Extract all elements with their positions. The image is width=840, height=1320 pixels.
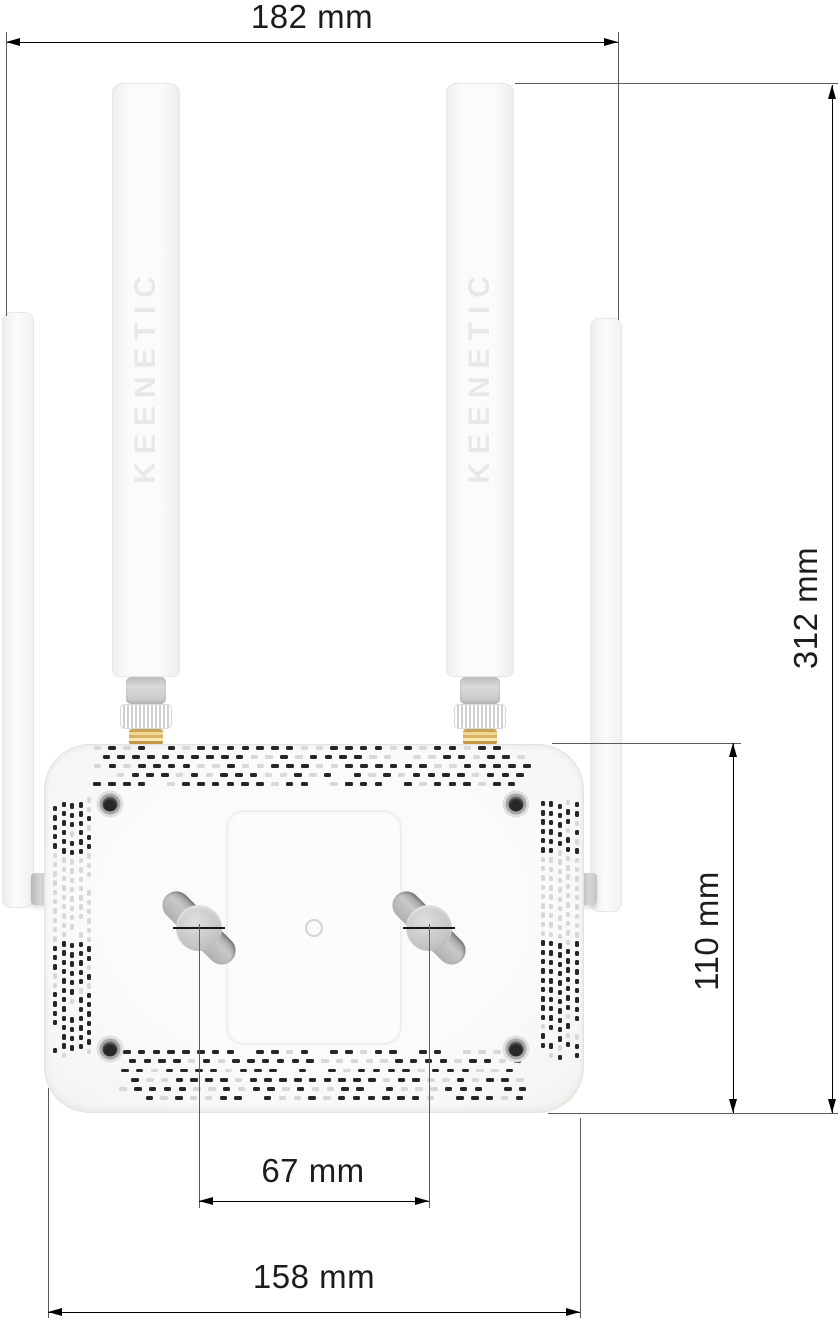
vent-hole xyxy=(575,867,579,872)
vent-hole xyxy=(501,1078,509,1082)
vent-hole xyxy=(62,1034,66,1039)
vent-hole xyxy=(212,764,220,768)
dim-arrow xyxy=(828,85,836,99)
vent-hole xyxy=(62,876,66,881)
vent-hole xyxy=(354,755,362,759)
vent-hole xyxy=(575,951,579,956)
vent-hole xyxy=(413,773,421,777)
vent-hole xyxy=(353,1078,361,1082)
vent-hole xyxy=(508,764,516,768)
vent-hole xyxy=(549,829,553,834)
vent-hole xyxy=(558,1027,562,1032)
vent-hole xyxy=(62,802,66,807)
vent-hole xyxy=(541,912,545,917)
vent-hole xyxy=(360,782,368,786)
vent-hole xyxy=(203,1059,211,1063)
vent-hole xyxy=(53,936,57,941)
vent-hole xyxy=(251,755,259,759)
vent-hole xyxy=(445,1087,453,1091)
vent-hole xyxy=(541,810,545,815)
vent-hole xyxy=(549,1053,553,1058)
vent-hole xyxy=(541,829,545,834)
vent-hole xyxy=(566,828,570,833)
vent-hole xyxy=(449,764,457,768)
vent-hole xyxy=(175,1096,183,1100)
vent-hole xyxy=(70,813,74,818)
vent-hole xyxy=(62,904,66,909)
vent-hole xyxy=(558,1055,562,1060)
vent-hole xyxy=(366,1059,374,1063)
dim-mount-spacing-label: 67 mm xyxy=(261,1152,364,1190)
vent-hole xyxy=(549,1025,553,1030)
vent-hole xyxy=(516,773,524,777)
dim-arrow xyxy=(6,38,20,46)
vent-hole xyxy=(286,764,294,768)
vent-hole xyxy=(62,1053,66,1058)
vent-hole xyxy=(575,988,579,993)
vent-hole xyxy=(271,782,279,786)
vent-hole xyxy=(87,965,91,970)
vent-hole xyxy=(87,844,91,849)
vent-hole xyxy=(514,1059,522,1063)
vent-hole xyxy=(324,1078,332,1082)
vent-hole xyxy=(212,746,220,750)
vent-hole xyxy=(575,941,579,946)
vent-hole xyxy=(79,1044,83,1049)
vent-hole xyxy=(464,764,472,768)
vent-hole xyxy=(53,862,57,867)
vent-hole xyxy=(62,820,66,825)
vent-hole xyxy=(79,858,83,863)
vent-hole xyxy=(309,773,317,777)
vent-hole xyxy=(566,949,570,954)
vent-hole xyxy=(549,904,553,909)
vent-hole xyxy=(566,1014,570,1019)
vent-hole xyxy=(449,746,457,750)
vent-hole xyxy=(168,764,176,768)
dim-arrow xyxy=(415,1197,429,1205)
vent-hole xyxy=(280,755,288,759)
vent-hole xyxy=(541,987,545,992)
vent-hole xyxy=(70,989,74,994)
vent-hole xyxy=(79,1035,83,1040)
vent-hole xyxy=(566,847,570,852)
vent-hole xyxy=(70,915,74,920)
vent-hole xyxy=(62,941,66,946)
vent-hole xyxy=(87,983,91,988)
router-dimension-drawing: KEENETIC KEENETIC 182 mm 312 mm 110 mm 6… xyxy=(0,0,840,1320)
vent-hole xyxy=(388,1069,396,1073)
vent-hole xyxy=(221,755,229,759)
vent-hole xyxy=(343,1069,351,1073)
vent-hole xyxy=(390,764,398,768)
vent-hole xyxy=(575,960,579,965)
vent-hole xyxy=(146,1078,154,1082)
vent-hole xyxy=(478,782,486,786)
vent-hole xyxy=(182,1050,190,1054)
vent-hole xyxy=(138,746,146,750)
vent-hole xyxy=(479,764,487,768)
vent-hole xyxy=(62,950,66,955)
vent-hole xyxy=(70,878,74,883)
vent-hole xyxy=(472,1078,480,1082)
vent-hole xyxy=(79,1016,83,1021)
vent-hole xyxy=(271,1050,279,1054)
vent-hole xyxy=(62,960,66,965)
vent-hole xyxy=(87,1030,91,1035)
extension-line xyxy=(548,1113,838,1114)
vent-hole xyxy=(541,838,545,843)
vent-hole xyxy=(123,746,131,750)
vent-hole xyxy=(462,1069,470,1073)
vent-hole xyxy=(384,755,392,759)
vent-hole xyxy=(79,979,83,984)
vent-hole xyxy=(312,1087,320,1091)
vent-hole xyxy=(70,906,74,911)
vent-hole xyxy=(87,797,91,802)
vent-hole xyxy=(558,971,562,976)
vent-hole xyxy=(179,1087,187,1091)
vent-hole xyxy=(541,922,545,927)
vent-hole xyxy=(79,849,83,854)
vent-hole xyxy=(558,1045,562,1050)
vent-hole xyxy=(541,866,545,871)
vent-hole xyxy=(504,1087,512,1091)
vent-hole xyxy=(566,958,570,963)
vent-hole xyxy=(398,773,406,777)
vent-hole xyxy=(541,996,545,1001)
vent-hole xyxy=(427,1096,435,1100)
vent-hole xyxy=(191,755,199,759)
vent-hole xyxy=(339,755,347,759)
vent-hole xyxy=(541,940,545,945)
vent-hole xyxy=(390,746,398,750)
vent-hole xyxy=(491,1069,499,1073)
dim-top-width-line xyxy=(6,42,618,43)
antenna-front-left-hinge xyxy=(126,677,166,704)
vent-hole xyxy=(87,835,91,840)
vent-hole xyxy=(191,773,199,777)
vent-hole xyxy=(87,900,91,905)
vent-hole xyxy=(558,869,562,874)
vent-hole xyxy=(53,955,57,960)
vent-hole xyxy=(558,915,562,920)
vent-hole xyxy=(79,811,83,816)
vent-hole xyxy=(472,773,480,777)
vent-hole xyxy=(138,764,146,768)
vent-hole xyxy=(62,978,66,983)
vent-hole xyxy=(575,932,579,937)
vent-hole xyxy=(566,874,570,879)
vent-hole xyxy=(558,897,562,902)
vent-hole xyxy=(271,746,279,750)
screw-bottom-left xyxy=(103,1042,118,1057)
vent-hole xyxy=(464,746,472,750)
dim-body-height-label: 110 mm xyxy=(688,871,726,991)
extension-line xyxy=(552,743,741,744)
vent-hole xyxy=(558,850,562,855)
vent-hole xyxy=(161,1078,169,1082)
vent-hole xyxy=(382,1096,390,1100)
vent-hole xyxy=(190,1096,198,1100)
vent-hole xyxy=(401,1087,409,1091)
vent-hole xyxy=(236,755,244,759)
vent-hole xyxy=(541,1043,545,1048)
vent-hole xyxy=(541,847,545,852)
vent-hole xyxy=(70,1045,74,1050)
vent-hole xyxy=(502,773,510,777)
vent-hole xyxy=(549,811,553,816)
vent-hole xyxy=(405,764,413,768)
vent-hole xyxy=(205,1078,213,1082)
vent-hole xyxy=(235,1078,243,1082)
vent-hole xyxy=(62,830,66,835)
vent-hole xyxy=(240,1069,248,1073)
vent-hole xyxy=(558,822,562,827)
vent-hole xyxy=(558,1036,562,1041)
antenna-side-left xyxy=(2,312,34,908)
vent-hole xyxy=(463,1050,471,1054)
vent-hole xyxy=(502,755,510,759)
vent-hole xyxy=(558,804,562,809)
vent-hole xyxy=(383,1078,391,1082)
antenna-side-right xyxy=(590,318,622,912)
dim-overall-height-label: 312 mm xyxy=(787,547,825,669)
vent-hole xyxy=(549,885,553,890)
vent-hole xyxy=(138,1050,146,1054)
vent-hole xyxy=(549,1015,553,1020)
vent-hole xyxy=(153,764,161,768)
vent-hole xyxy=(62,1025,66,1030)
vent-hole xyxy=(471,1096,479,1100)
vent-hole xyxy=(499,1059,507,1063)
vent-hole xyxy=(558,878,562,883)
vent-hole xyxy=(79,997,83,1002)
vent-hole xyxy=(558,934,562,939)
vent-hole xyxy=(212,1050,220,1054)
vent-hole xyxy=(383,773,391,777)
dim-body-width-line xyxy=(48,1312,580,1313)
vent-hole xyxy=(79,960,83,965)
vent-hole xyxy=(190,1078,198,1082)
vent-hole xyxy=(242,764,250,768)
vent-hole xyxy=(375,746,383,750)
vent-hole xyxy=(223,1087,231,1091)
vent-hole xyxy=(549,839,553,844)
vent-hole xyxy=(575,858,579,863)
dim-arrow xyxy=(828,1099,836,1113)
vent-hole xyxy=(53,1048,57,1053)
vent-hole xyxy=(53,871,57,876)
vent-hole xyxy=(566,921,570,926)
vent-hole xyxy=(486,1078,494,1082)
extension-line xyxy=(48,1088,49,1318)
vent-hole xyxy=(575,839,579,844)
vent-hole xyxy=(53,964,57,969)
vent-hole xyxy=(443,755,451,759)
vent-hole xyxy=(575,1044,579,1049)
vent-hole xyxy=(457,1078,465,1082)
dim-overall-height-line xyxy=(832,85,833,1113)
vent-hole xyxy=(151,1069,159,1073)
vent-hole xyxy=(575,904,579,909)
vent-hole xyxy=(558,887,562,892)
vent-hole xyxy=(558,990,562,995)
vent-hole xyxy=(558,841,562,846)
vent-hole xyxy=(62,895,66,900)
vent-hole xyxy=(277,1059,285,1063)
vent-hole xyxy=(428,755,436,759)
vent-hole xyxy=(410,1059,418,1063)
vent-hole xyxy=(558,1008,562,1013)
vent-hole xyxy=(310,755,318,759)
vent-hole xyxy=(70,850,74,855)
vent-hole xyxy=(253,1087,261,1091)
vent-hole xyxy=(541,1033,545,1038)
vent-hole xyxy=(53,834,57,839)
vent-hole xyxy=(70,868,74,873)
vent-hole xyxy=(419,746,427,750)
vent-hole xyxy=(316,746,324,750)
vent-hole xyxy=(176,1078,184,1082)
vent-hole xyxy=(447,1069,455,1073)
vent-hole xyxy=(242,746,250,750)
vent-hole xyxy=(368,1078,376,1082)
vent-hole xyxy=(549,941,553,946)
vent-hole xyxy=(256,746,264,750)
vent-hole xyxy=(373,1069,381,1073)
vent-hole xyxy=(412,1078,420,1082)
vent-hole xyxy=(324,773,332,777)
vent-hole xyxy=(566,930,570,935)
extension-line xyxy=(618,32,619,320)
vent-hole xyxy=(541,950,545,955)
vent-hole xyxy=(247,1059,255,1063)
vent-hole xyxy=(70,971,74,976)
vent-hole xyxy=(79,839,83,844)
vent-hole xyxy=(164,1087,172,1091)
vent-hole xyxy=(321,1059,329,1063)
vent-hole xyxy=(558,962,562,967)
vent-hole xyxy=(434,1050,442,1054)
vent-hole xyxy=(356,1087,364,1091)
vent-hole xyxy=(108,746,116,750)
vent-hole xyxy=(549,801,553,806)
vent-hole xyxy=(336,1059,344,1063)
vent-hole xyxy=(79,802,83,807)
vent-hole xyxy=(166,1069,174,1073)
vent-hole xyxy=(79,914,83,919)
vent-hole xyxy=(295,755,303,759)
extension-line xyxy=(515,83,838,84)
vent-hole xyxy=(575,1053,579,1058)
vent-hole xyxy=(53,843,57,848)
vent-hole xyxy=(360,1050,368,1054)
vent-hole xyxy=(331,764,339,768)
vent-hole xyxy=(132,773,140,777)
vent-hole xyxy=(566,902,570,907)
vent-hole xyxy=(345,1050,353,1054)
antenna-front-left: KEENETIC xyxy=(112,83,180,677)
vent-hole xyxy=(434,746,442,750)
vent-hole xyxy=(256,782,264,786)
vent-hole xyxy=(208,1087,216,1091)
vent-hole xyxy=(549,932,553,937)
vent-hole xyxy=(434,782,442,786)
vent-hole xyxy=(397,1096,405,1100)
vent-hole xyxy=(549,894,553,899)
vent-hole xyxy=(70,841,74,846)
vent-hole xyxy=(234,1096,242,1100)
vent-hole xyxy=(227,782,235,786)
vent-hole xyxy=(345,782,353,786)
vent-hole xyxy=(79,895,83,900)
vent-hole xyxy=(132,755,140,759)
screw-top-left xyxy=(103,797,118,812)
vent-hole xyxy=(575,969,579,974)
vent-hole xyxy=(341,1087,349,1091)
vent-hole xyxy=(460,1087,468,1091)
vent-hole xyxy=(70,822,74,827)
vent-hole xyxy=(375,764,383,768)
vent-hole xyxy=(94,746,102,750)
vent-hole xyxy=(257,764,265,768)
vent-hole xyxy=(454,1059,462,1063)
vent-hole xyxy=(301,764,309,768)
vent-hole xyxy=(153,1050,161,1054)
vent-hole xyxy=(541,959,545,964)
extension-line xyxy=(580,1118,581,1318)
vent-hole xyxy=(53,946,57,951)
vent-hole xyxy=(368,773,376,777)
center-hole xyxy=(305,919,323,937)
vent-hole xyxy=(395,1059,403,1063)
vent-hole xyxy=(360,764,368,768)
vent-hole xyxy=(517,755,525,759)
vent-hole xyxy=(558,1018,562,1023)
vent-hole xyxy=(549,922,553,927)
vent-hole xyxy=(516,1078,524,1082)
vent-hole xyxy=(523,764,531,768)
vent-hole xyxy=(158,1059,166,1063)
vent-hole xyxy=(473,755,481,759)
vent-hole xyxy=(476,1069,484,1073)
vent-hole xyxy=(79,830,83,835)
vent-hole xyxy=(62,1043,66,1048)
vent-hole xyxy=(493,746,501,750)
vent-hole xyxy=(168,746,176,750)
vent-hole xyxy=(566,1023,570,1028)
vent-hole xyxy=(218,1059,226,1063)
vent-hole xyxy=(428,773,436,777)
vent-hole xyxy=(541,894,545,899)
vent-hole xyxy=(119,1087,127,1091)
vent-hole xyxy=(541,931,545,936)
vent-hole xyxy=(541,1024,545,1029)
vent-hole xyxy=(566,1033,570,1038)
vent-hole xyxy=(53,908,57,913)
vent-hole xyxy=(380,1059,388,1063)
vent-hole xyxy=(368,1096,376,1100)
vent-hole xyxy=(87,807,91,812)
vent-hole xyxy=(176,773,184,777)
vent-hole xyxy=(566,912,570,917)
vent-hole xyxy=(146,1096,154,1100)
vent-hole xyxy=(70,831,74,836)
vent-hole xyxy=(354,773,362,777)
vent-hole xyxy=(53,825,57,830)
vent-hole xyxy=(575,923,579,928)
